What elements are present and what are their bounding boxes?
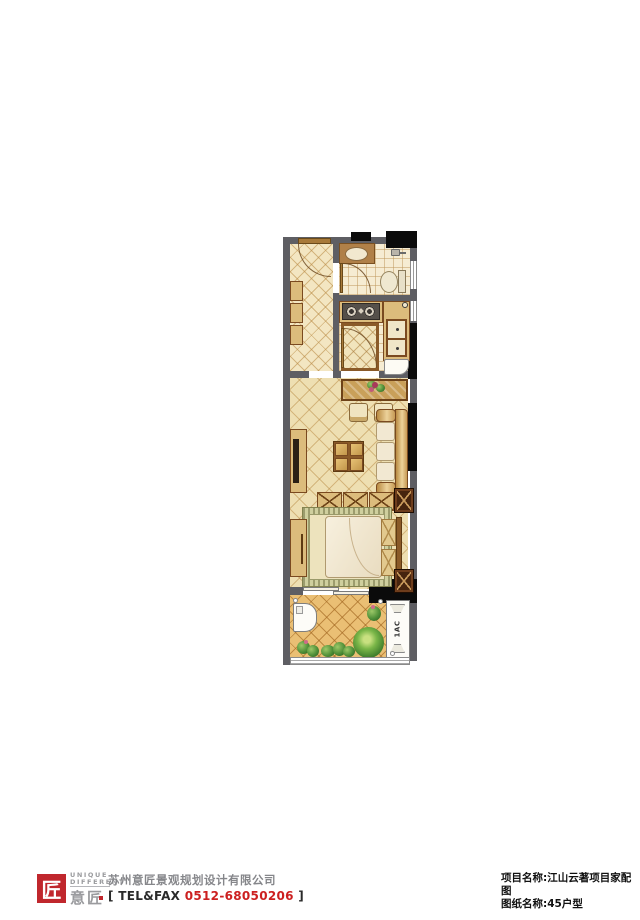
project-name-label: 项目名称: <box>501 872 547 884</box>
nightstand-bottom <box>394 569 414 593</box>
balcony-drain-left <box>293 598 298 603</box>
balcony-plant-left-2 <box>307 645 319 657</box>
coffee-table <box>333 441 364 472</box>
contact-line: [ TEL&FAX 0512-68050206 ] <box>108 889 304 903</box>
entry-cabinet-3 <box>290 325 303 345</box>
entry-cabinet-2 <box>290 303 303 323</box>
sink-drain-bottom <box>396 347 399 350</box>
company-name: 苏州意匠景观规划设计有限公司 <box>108 872 276 888</box>
drawing-sheet: 1AC 匠 UNIQUE DIFFERENT 意匠 苏州意匠景观规划设计有限公司… <box>0 0 640 920</box>
company-logo-icon: 匠 <box>37 874 66 903</box>
sofa-arm-top <box>376 409 396 422</box>
sliding-door-leaf-2 <box>333 591 369 595</box>
vanity-sink-icon <box>345 247 368 261</box>
kitchen-sink-icon <box>386 319 407 357</box>
shower-arm-icon <box>400 252 406 254</box>
dining-chair-1 <box>349 403 368 422</box>
bracket-close: ] <box>298 889 304 903</box>
sofa-back <box>395 409 408 495</box>
sink-divider <box>388 338 405 340</box>
drawing-name-label: 图纸名称: <box>501 898 547 910</box>
hall-living-wall-stub <box>283 371 309 378</box>
shower-head-icon <box>391 249 400 256</box>
tv-icon <box>293 439 299 483</box>
coffee-table-cell <box>350 443 363 456</box>
drawing-name-line: 图纸名称:45户型 <box>501 898 640 911</box>
ac-platform: 1AC <box>386 600 410 658</box>
coffee-table-cell <box>335 458 348 471</box>
bracket-open: [ <box>108 889 114 903</box>
coffee-table-cell <box>350 458 363 471</box>
ac-drain-circle <box>390 651 395 656</box>
burner-icon-right <box>364 306 375 317</box>
project-name-line: 项目名称:江山云著项目家配图 <box>501 872 640 898</box>
black-wall-top-middle <box>351 232 371 241</box>
ac-label: 1AC <box>393 621 401 638</box>
logo-red-square <box>99 896 103 900</box>
bed-pillow-1 <box>381 519 396 546</box>
balcony-plant-mid-3 <box>343 646 355 657</box>
wardrobe-handle <box>301 534 303 564</box>
kitchen-window <box>410 301 417 321</box>
pipe-circle-icon <box>402 302 408 308</box>
washing-machine-icon <box>293 603 317 632</box>
bathroom-window <box>410 261 417 289</box>
sink-drain-top <box>396 328 399 331</box>
logo-word-different: DIFFERENT <box>70 879 110 887</box>
railing-post-right <box>410 651 417 661</box>
railing-post-left <box>283 651 290 665</box>
drawing-name-value: 45户型 <box>547 898 583 910</box>
balcony-bush-sphere <box>353 627 384 658</box>
burner-icon-left <box>346 306 357 317</box>
black-wall-living-right <box>408 403 417 471</box>
nightstand-top <box>394 488 414 513</box>
balcony-drain-right <box>378 599 383 604</box>
balcony-flower-dot <box>371 605 375 609</box>
toilet-tank-icon <box>398 270 406 293</box>
bedroom-balcony-wall-stub <box>283 587 303 595</box>
kitchen-corner-counter <box>384 359 409 375</box>
balcony-flower-dot-2 <box>304 640 308 644</box>
telfax-label: TEL&FAX <box>118 889 180 903</box>
coffee-table-cell <box>335 443 348 456</box>
ac-bracket-top <box>390 604 405 613</box>
black-wall-top-right <box>386 231 417 248</box>
sofa-cushion-3 <box>376 462 395 481</box>
logo-wordmark: UNIQUE DIFFERENT 意匠 <box>70 872 110 908</box>
phone-number: 0512-68050206 <box>185 889 294 903</box>
left-wall <box>283 237 290 665</box>
balcony-railing <box>290 657 410 665</box>
washer-panel <box>296 606 303 614</box>
toilet-bowl-icon <box>380 271 398 293</box>
title-block: 项目名称:江山云著项目家配图 图纸名称:45户型 <box>501 872 640 911</box>
sofa-cushion-2 <box>376 442 395 461</box>
sofa-cushion-1 <box>376 422 395 441</box>
floor-plan: 1AC <box>283 231 417 668</box>
centerpiece-flower-icon-2 <box>369 387 374 392</box>
entry-cabinet-1 <box>290 281 303 301</box>
logo-cjk-text: 意匠 <box>70 887 110 908</box>
kitchen-dining-wall-left <box>333 371 341 378</box>
wardrobe <box>290 519 307 577</box>
